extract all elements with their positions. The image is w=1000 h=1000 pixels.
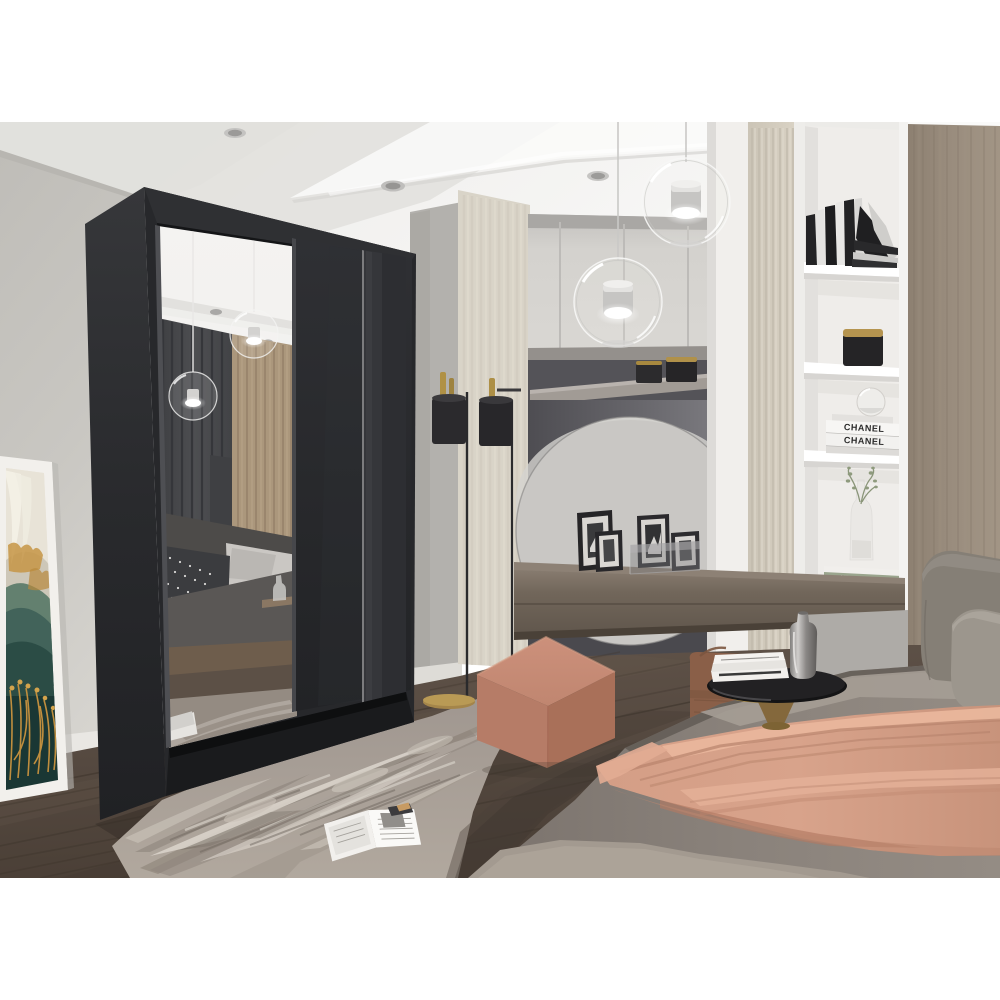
svg-text:CHANEL: CHANEL [844, 422, 885, 434]
svg-text:CHANEL: CHANEL [844, 435, 885, 447]
